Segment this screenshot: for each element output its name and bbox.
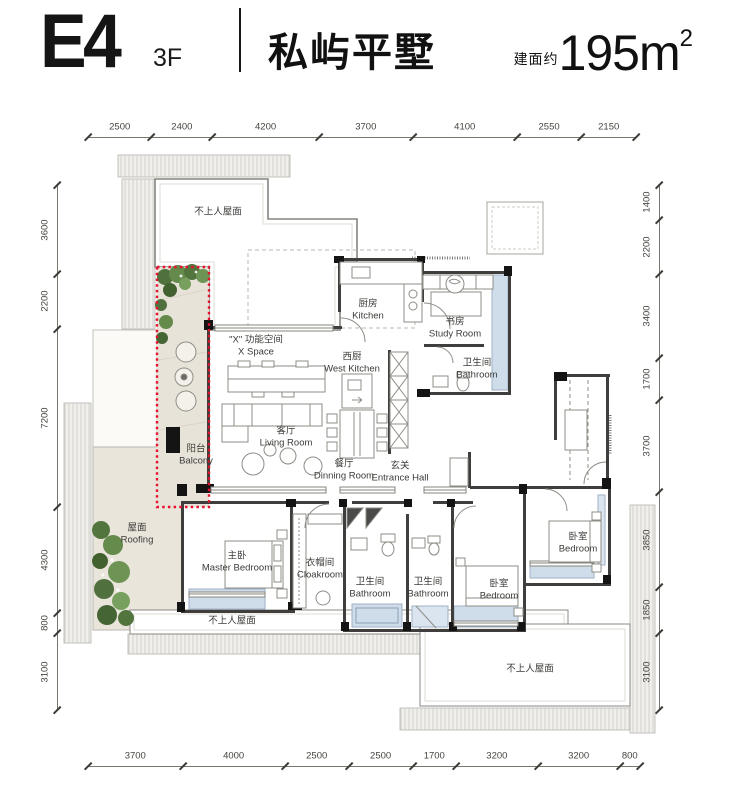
dim-value: 3400 xyxy=(642,306,653,327)
dim-value: 4000 xyxy=(223,751,244,762)
dim-value: 3100 xyxy=(642,661,653,682)
floorplan-page: E4 3F 私屿平墅 建面约195m2 xyxy=(0,0,729,803)
dim-value: 2200 xyxy=(642,236,653,257)
dim-value: 1700 xyxy=(642,369,653,390)
dim-value: 4200 xyxy=(255,122,276,133)
dim-value: 800 xyxy=(622,751,638,762)
dim-value: 3200 xyxy=(486,751,507,762)
dim-value: 2150 xyxy=(598,122,619,133)
storage-cabinets xyxy=(390,352,408,448)
dim-value: 3700 xyxy=(642,436,653,457)
dim-value: 3850 xyxy=(642,529,653,550)
dim-value: 3600 xyxy=(40,219,51,240)
floor-plan-drawing xyxy=(0,0,729,803)
floor-plan: 不上人屋面厨房Kitchen书房Study Room"X" 功能空间X Spac… xyxy=(0,0,729,803)
dim-value: 2400 xyxy=(171,122,192,133)
dim-value: 7200 xyxy=(40,407,51,428)
dim-value: 3100 xyxy=(40,661,51,682)
dim-value: 2500 xyxy=(370,751,391,762)
dim-value: 3700 xyxy=(125,751,146,762)
dim-value: 4100 xyxy=(454,122,475,133)
dim-value: 2500 xyxy=(109,122,130,133)
dim-value: 4300 xyxy=(40,550,51,571)
dim-value: 3700 xyxy=(355,122,376,133)
dim-value: 2500 xyxy=(306,751,327,762)
dim-value: 2550 xyxy=(539,122,560,133)
dim-value: 800 xyxy=(40,615,51,631)
dim-value: 1400 xyxy=(642,192,653,213)
dim-value: 3200 xyxy=(568,751,589,762)
dim-value: 2200 xyxy=(40,291,51,312)
dim-value: 1850 xyxy=(642,600,653,621)
dim-value: 1700 xyxy=(424,751,445,762)
